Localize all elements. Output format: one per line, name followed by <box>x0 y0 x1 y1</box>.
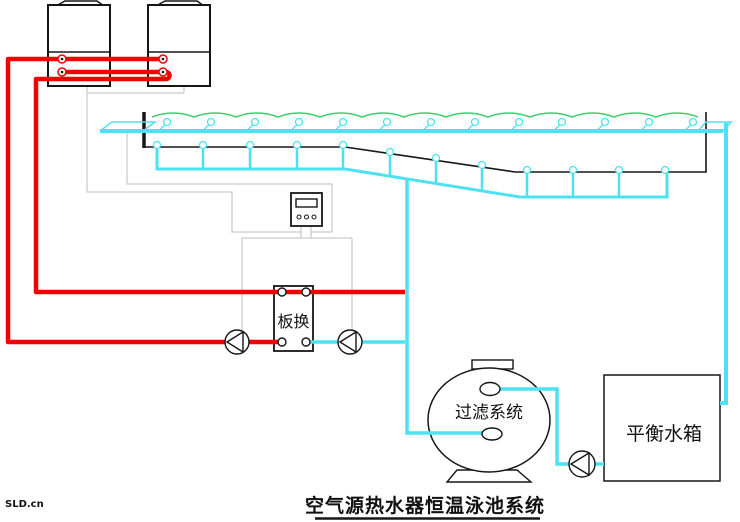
floor-nozzle <box>524 167 531 174</box>
circulation-pump-1 <box>225 330 249 354</box>
hx-port <box>302 338 310 346</box>
hot-return-pipe <box>36 72 405 292</box>
pool-system-diagram: 板换 过滤系统 平衡水箱 空气源热水器恒温泳池系统 SLD.cn <box>0 0 740 522</box>
filtration-pump <box>569 451 595 477</box>
hot-water-pipes <box>8 55 405 342</box>
wire-controller-stubs <box>301 226 311 238</box>
filter-top-port <box>480 383 500 396</box>
water-surface-wave <box>152 113 698 117</box>
hx-port <box>302 288 310 296</box>
hot-supply-pipe <box>8 59 282 342</box>
floor-nozzle <box>433 155 440 162</box>
floor-nozzle <box>387 149 394 156</box>
diagram-canvas: 板换 过滤系统 平衡水箱 空气源热水器恒温泳池系统 SLD.cn <box>0 0 740 522</box>
hx-port <box>278 338 286 346</box>
filter-bottom-port <box>482 428 502 440</box>
floor-nozzle <box>570 167 577 174</box>
balance-tank-label: 平衡水箱 <box>626 423 702 445</box>
control-panel-button-1 <box>297 215 301 219</box>
floor-nozzle <box>479 162 486 169</box>
control-panel-button-2 <box>305 215 309 219</box>
heat-exchanger-label: 板换 <box>277 312 309 331</box>
control-panel-button-3 <box>312 215 316 219</box>
floor-nozzle <box>247 142 254 149</box>
floor-nozzle <box>200 142 207 149</box>
filter-label: 过滤系统 <box>455 403 523 423</box>
diagram-title: 空气源热水器恒温泳池系统 <box>305 494 545 517</box>
pool-floor-and-right-wall <box>143 112 706 172</box>
wire-heatpumps-to-controller <box>87 86 301 232</box>
wire-heatpump-link <box>87 86 184 93</box>
pool-structure <box>143 112 706 172</box>
control-panel <box>291 193 322 226</box>
pool-to-balance-tank-pipe <box>720 123 726 403</box>
circulation-pump-2 <box>338 330 362 354</box>
floor-nozzle <box>340 142 347 149</box>
floor-nozzle <box>154 142 161 149</box>
control-panel-display <box>296 199 317 207</box>
floor-nozzle <box>662 167 669 174</box>
floor-nozzle <box>616 167 623 174</box>
control-panel-body <box>291 193 322 226</box>
hx-port <box>278 288 286 296</box>
floor-nozzle <box>294 142 301 149</box>
watermark: SLD.cn <box>5 499 44 510</box>
